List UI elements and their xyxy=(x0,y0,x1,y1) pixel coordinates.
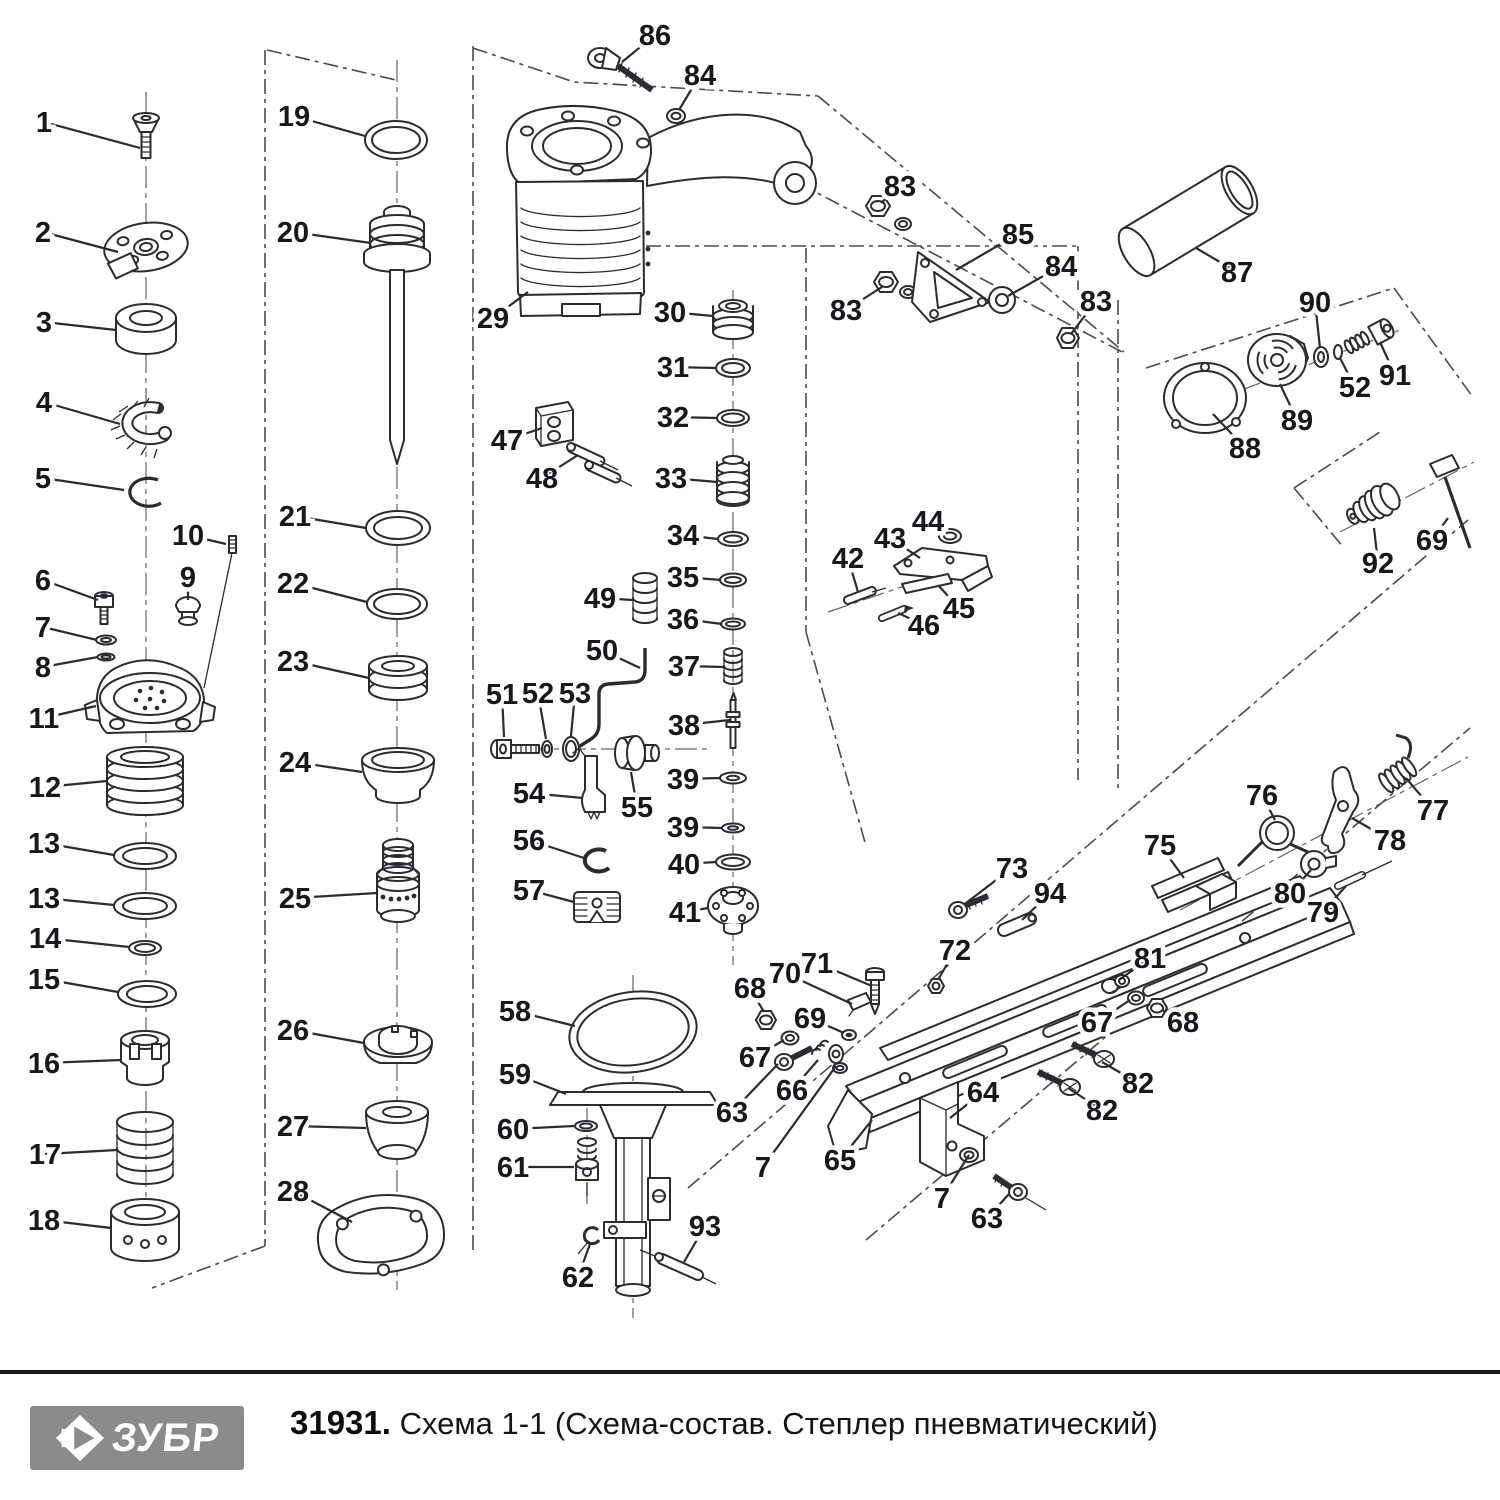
callout-8-7: 8 xyxy=(35,652,51,684)
part-54 xyxy=(573,748,605,819)
callout-33-33: 33 xyxy=(655,463,687,495)
part-16 xyxy=(121,1031,169,1085)
callout-84-91: 84 xyxy=(684,60,716,92)
callout-39-39: 39 xyxy=(667,764,699,796)
part-33 xyxy=(717,456,749,506)
schematic-page: 1234567891011121313141516171819202122232… xyxy=(0,0,1500,1500)
part-6 xyxy=(95,592,113,624)
leader-5-4 xyxy=(43,478,124,490)
callout-65-67: 65 xyxy=(824,1145,856,1177)
callout-71-76: 71 xyxy=(801,948,833,980)
part-60 xyxy=(575,1121,597,1131)
callout-67-69: 67 xyxy=(739,1042,771,1074)
part-22 xyxy=(367,589,427,619)
part-52m xyxy=(542,741,552,757)
callout-41-42: 41 xyxy=(669,897,701,929)
callout-4-3: 4 xyxy=(36,387,52,419)
callout-69-74: 69 xyxy=(1416,525,1448,557)
callout-77-81: 77 xyxy=(1417,795,1449,827)
callout-7-104: 7 xyxy=(755,1152,771,1184)
callout-44-45: 44 xyxy=(912,506,944,538)
part-47 xyxy=(536,402,573,446)
callout-62-63: 62 xyxy=(562,1262,594,1294)
part-28 xyxy=(314,1189,448,1282)
callout-9-8: 9 xyxy=(180,562,196,594)
callout-60-61: 60 xyxy=(497,1114,529,1146)
callout-43-44: 43 xyxy=(874,523,906,555)
callout-14-14: 14 xyxy=(29,923,61,955)
callout-47-48: 47 xyxy=(491,425,523,457)
part-20 xyxy=(364,206,430,464)
callout-85-93: 85 xyxy=(1002,219,1034,251)
callout-68-71: 68 xyxy=(734,973,766,1005)
callout-49-50: 49 xyxy=(584,583,616,615)
callout-1-0: 1 xyxy=(36,107,52,139)
part-3 xyxy=(116,304,176,354)
part-24 xyxy=(362,748,434,803)
part-94 xyxy=(1004,915,1036,931)
callout-64-66: 64 xyxy=(967,1077,999,1109)
part-48 xyxy=(567,443,632,486)
exploded-diagram: 1234567891011121313141516171819202122232… xyxy=(0,0,1500,1370)
part-17 xyxy=(117,1112,173,1184)
footer: ЗУБР 31931. Схема 1-1 (Схема-состав. Сте… xyxy=(0,1374,1500,1500)
part-27 xyxy=(366,1101,428,1159)
callout-83-90: 83 xyxy=(1080,286,1112,318)
part-84b xyxy=(989,287,1015,313)
part-66 xyxy=(812,1041,843,1063)
part-19 xyxy=(365,121,427,159)
callout-82-86: 82 xyxy=(1122,1068,1154,1100)
callout-86-94: 86 xyxy=(639,20,671,52)
callout-10-9: 10 xyxy=(172,520,204,552)
part-34 xyxy=(718,532,748,546)
callout-89-97: 89 xyxy=(1281,405,1313,437)
callout-93-102: 93 xyxy=(689,1211,721,1243)
part-31 xyxy=(716,359,750,377)
callout-63-64: 63 xyxy=(716,1097,748,1129)
callout-13-12: 13 xyxy=(28,828,60,860)
callout-2-1: 2 xyxy=(35,217,51,249)
part-1 xyxy=(133,113,159,158)
callout-63-65: 63 xyxy=(971,1203,1003,1235)
callout-19-19: 19 xyxy=(278,101,310,133)
callout-7-105: 7 xyxy=(934,1183,950,1215)
part-61 xyxy=(576,1138,598,1196)
part-13 xyxy=(114,843,176,919)
leader-8-7 xyxy=(43,657,98,667)
part-92 xyxy=(1341,479,1405,533)
callout-13-13: 13 xyxy=(28,883,60,915)
callout-83-89: 83 xyxy=(830,295,862,327)
callout-94-103: 94 xyxy=(1034,878,1066,910)
callout-22-22: 22 xyxy=(277,568,309,600)
part-82a xyxy=(1072,1042,1114,1067)
callout-67-70: 67 xyxy=(1081,1007,1113,1039)
part-12 xyxy=(107,747,183,815)
callout-90-98: 90 xyxy=(1299,287,1331,319)
callout-83-88: 83 xyxy=(884,171,916,203)
callout-58-59: 58 xyxy=(499,996,531,1028)
part-10 xyxy=(204,536,236,688)
part-4 xyxy=(111,398,171,458)
part-88 xyxy=(1164,363,1246,433)
part-7 xyxy=(96,636,116,645)
drawing-title: 31931. Схема 1-1 (Схема-состав. Степлер … xyxy=(290,1404,1470,1442)
callout-61-62: 61 xyxy=(497,1152,529,1184)
callout-73-78: 73 xyxy=(996,853,1028,885)
callout-40-41: 40 xyxy=(668,849,700,881)
part-18 xyxy=(111,1199,179,1261)
part-29 xyxy=(507,106,816,316)
part-67b xyxy=(1128,992,1144,1005)
part-49 xyxy=(633,573,657,623)
callout-68-72: 68 xyxy=(1167,1007,1199,1039)
part-55 xyxy=(615,736,659,770)
part-25 xyxy=(377,839,419,922)
part-78 xyxy=(1322,767,1359,853)
part-41 xyxy=(708,887,758,934)
part-91 xyxy=(1343,317,1396,354)
callout-7-6: 7 xyxy=(35,612,51,644)
drawing-name: Схема 1-1 (Схема-состав. Степлер пневмат… xyxy=(400,1406,1158,1441)
callout-91-99: 91 xyxy=(1379,360,1411,392)
part-36 xyxy=(721,619,745,630)
callout-26-26: 26 xyxy=(277,1015,309,1047)
part-85 xyxy=(912,252,990,322)
callout-52-53: 52 xyxy=(522,678,554,710)
callout-52-100: 52 xyxy=(1339,372,1371,404)
callout-32-32: 32 xyxy=(657,402,689,434)
drawing-code: 31931. xyxy=(290,1404,391,1441)
callout-34-34: 34 xyxy=(667,520,699,552)
part-53a xyxy=(895,218,911,230)
callout-15-15: 15 xyxy=(28,964,60,996)
zubr-logo-icon xyxy=(54,1413,106,1463)
callout-75-79: 75 xyxy=(1144,830,1176,862)
part-35 xyxy=(720,574,746,587)
part-26 xyxy=(364,1026,432,1063)
part-23 xyxy=(369,656,427,700)
callout-45-46: 45 xyxy=(943,593,975,625)
callout-69-73: 69 xyxy=(794,1003,826,1035)
callout-70-75: 70 xyxy=(769,958,801,990)
part-14 xyxy=(129,941,161,955)
callout-48-49: 48 xyxy=(526,463,558,495)
callout-66-68: 66 xyxy=(776,1075,808,1107)
axis-lines xyxy=(146,60,1474,1318)
callout-54-55: 54 xyxy=(513,778,545,810)
leader-6-5 xyxy=(43,580,98,600)
part-89 xyxy=(1248,334,1308,386)
callout-3-2: 3 xyxy=(36,307,52,339)
callout-50-51: 50 xyxy=(586,635,618,667)
part-11 xyxy=(85,660,215,733)
part-83c xyxy=(1057,328,1079,348)
callout-39-40: 39 xyxy=(667,812,699,844)
callout-78-82: 78 xyxy=(1374,825,1406,857)
callout-28-28: 28 xyxy=(277,1176,309,1208)
part-69a xyxy=(842,1030,856,1040)
callout-57-58: 57 xyxy=(513,875,545,907)
part-79 xyxy=(1338,861,1392,886)
part-84a xyxy=(667,109,685,123)
callout-18-18: 18 xyxy=(28,1205,60,1237)
callout-20-20: 20 xyxy=(277,217,309,249)
callout-23-23: 23 xyxy=(277,646,309,678)
part-71 xyxy=(866,968,884,1014)
part-76 xyxy=(1238,816,1308,866)
callout-56-57: 56 xyxy=(513,825,545,857)
callout-24-24: 24 xyxy=(279,747,311,779)
part-90 xyxy=(1314,347,1328,367)
zubr-logo: ЗУБР xyxy=(30,1406,244,1470)
callout-17-17: 17 xyxy=(29,1139,61,1171)
callout-79-83: 79 xyxy=(1307,897,1339,929)
callout-42-43: 42 xyxy=(832,543,864,575)
part-93 xyxy=(640,1250,716,1284)
callout-5-4: 5 xyxy=(35,463,51,495)
part-15 xyxy=(118,981,176,1007)
callout-53-54: 53 xyxy=(559,678,591,710)
leader-4-3 xyxy=(44,402,120,424)
callout-6-5: 6 xyxy=(35,565,51,597)
part-75 xyxy=(1152,858,1236,912)
part-68a xyxy=(756,1011,776,1029)
callout-36-36: 36 xyxy=(667,604,699,636)
callout-80-84: 80 xyxy=(1274,878,1306,910)
part-68b xyxy=(1147,999,1167,1017)
part-21 xyxy=(366,511,430,545)
callout-27-27: 27 xyxy=(277,1111,309,1143)
callout-88-96: 88 xyxy=(1229,433,1261,465)
part-9 xyxy=(176,597,200,625)
part-72 xyxy=(928,979,944,993)
construction-lines xyxy=(152,46,1472,1288)
part-8 xyxy=(98,654,115,661)
zubr-logo-text: ЗУБР xyxy=(110,1416,223,1461)
leader-1-0 xyxy=(44,122,140,148)
part-51 xyxy=(491,740,539,758)
part-2 xyxy=(101,217,191,279)
part-52r xyxy=(1334,345,1342,359)
callout-55-56: 55 xyxy=(621,792,653,824)
callout-84-92: 84 xyxy=(1045,251,1077,283)
part-63a xyxy=(775,1048,812,1070)
callout-35-35: 35 xyxy=(667,562,699,594)
callout-59-60: 59 xyxy=(499,1059,531,1091)
callout-30-30: 30 xyxy=(654,297,686,329)
callout-29-29: 29 xyxy=(477,303,509,335)
callout-81-85: 81 xyxy=(1134,943,1166,975)
part-30 xyxy=(713,300,753,339)
callout-16-16: 16 xyxy=(28,1048,60,1080)
part-56 xyxy=(585,849,609,871)
leader-3-2 xyxy=(44,322,116,330)
leader-7-6 xyxy=(43,627,97,640)
part-80 xyxy=(1301,851,1336,877)
callout-21-21: 21 xyxy=(279,501,311,533)
callout-25-25: 25 xyxy=(279,883,311,915)
part-57 xyxy=(574,892,620,922)
part-40 xyxy=(716,855,750,870)
part-32 xyxy=(717,410,749,426)
callout-76-80: 76 xyxy=(1246,780,1278,812)
callout-12-11: 12 xyxy=(29,772,61,804)
callout-11-10: 11 xyxy=(29,703,60,735)
callout-46-47: 46 xyxy=(908,610,940,642)
callout-87-95: 87 xyxy=(1221,257,1253,289)
callout-37-37: 37 xyxy=(668,651,700,683)
callout-72-77: 72 xyxy=(939,935,971,967)
callout-82-87: 82 xyxy=(1086,1095,1118,1127)
callout-38-38: 38 xyxy=(668,710,700,742)
part-58 xyxy=(564,983,702,1080)
callout-31-31: 31 xyxy=(657,352,689,384)
part-53m xyxy=(563,737,579,761)
callout-51-52: 51 xyxy=(486,679,518,711)
callout-92-101: 92 xyxy=(1362,548,1394,580)
part-73 xyxy=(949,896,988,918)
